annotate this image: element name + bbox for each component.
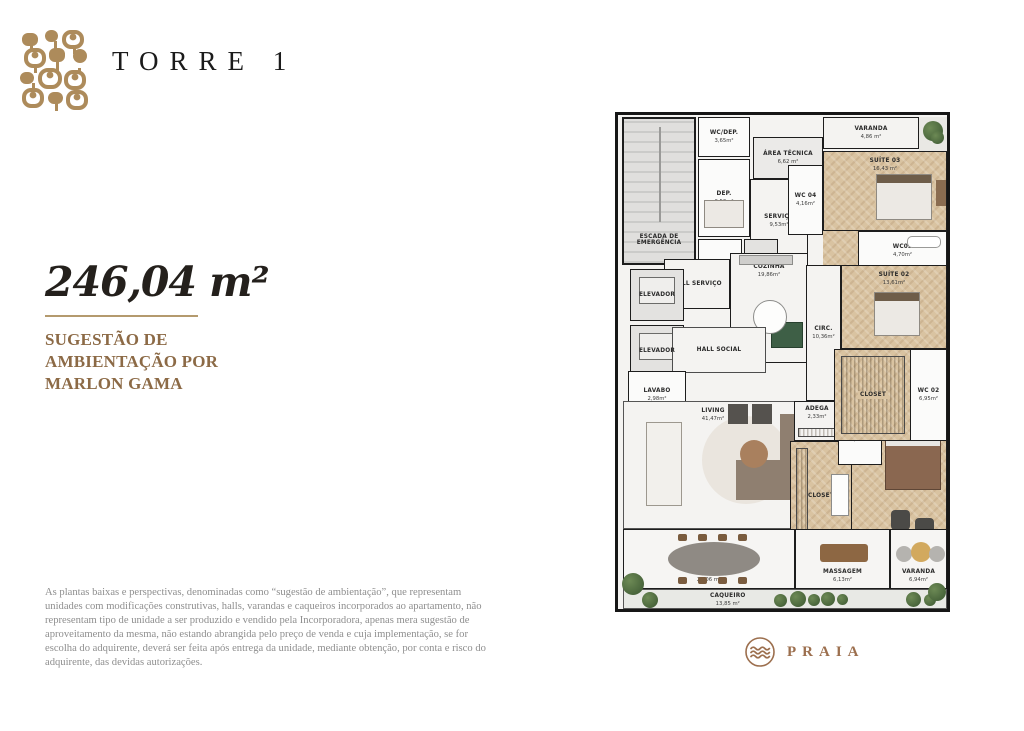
room-label: CIRC. [814, 326, 832, 333]
elevator-cab [639, 277, 675, 304]
room-area: 9,53m² [769, 222, 788, 228]
plant-icon [774, 594, 787, 607]
room-area: 4,86 m² [861, 134, 882, 140]
room-area: 6,13m² [833, 577, 852, 583]
plant-icon [808, 594, 820, 606]
credit-line-3: MARLON GAMA [45, 373, 275, 395]
kitchen-counter [739, 255, 793, 265]
room-hall-social: HALL SOCIAL [672, 327, 766, 373]
room-area: 16,43 m² [873, 166, 897, 172]
dining-chair [738, 577, 747, 584]
dining-chair [698, 577, 707, 584]
caqueiro-label: CAQUEIRO 13,85 m² [710, 593, 745, 607]
plant-icon [642, 592, 658, 608]
elevator-cab [639, 333, 675, 360]
plant-icon [790, 591, 806, 607]
dining-chair [718, 534, 727, 541]
unit-info: 246,04 m² SUGESTÃO DE AMBIENTAÇÃO POR MA… [45, 258, 275, 394]
dining-table [668, 542, 760, 576]
disclaimer-text: As plantas baixas e perspectivas, denomi… [45, 586, 489, 670]
praia-brand: PRAIA [744, 636, 865, 668]
room-closet-sup: CLOSET [834, 349, 912, 441]
room-label: LAVABO [644, 388, 671, 395]
planter-topright [919, 117, 947, 151]
room-label: ELEVADOR [639, 348, 675, 355]
room-wc04: WC 04 4,16m² [788, 165, 823, 235]
closet-desk [831, 474, 849, 516]
room-varanda-top: VARANDA 4,86 m² [823, 117, 919, 149]
room-area: 41,47m² [702, 416, 724, 422]
room-label: ESCADA DE EMERGÊNCIA [624, 234, 694, 247]
room-area: 6,94m² [909, 577, 928, 583]
room-area: 13,85 m² [716, 601, 740, 607]
floor-plan: ESCADA DE EMERGÊNCIA WC/DEP. 3,65m² DEP.… [615, 112, 950, 612]
bathtub [907, 236, 941, 248]
room-label: DEP. [717, 191, 732, 198]
room-area: 6,62 m² [778, 159, 799, 165]
living-sofa [646, 422, 682, 506]
unit-area: 246,04 m² [45, 258, 275, 306]
room-label: WC/DEP. [710, 130, 738, 137]
coffee-table [740, 440, 768, 468]
room-area: 4,70m² [893, 252, 912, 258]
dining-chair [718, 577, 727, 584]
headboard [875, 293, 919, 301]
room-suite02: SUÍTE 02 13,61m² [841, 265, 947, 349]
room-escada: ESCADA DE EMERGÊNCIA [622, 117, 696, 265]
plant-icon [928, 583, 946, 601]
massage-table [820, 544, 868, 562]
terrace-chair [929, 546, 945, 562]
room-area: 4,16m² [796, 201, 815, 207]
room-varanda2: VARANDA 6,94m² [890, 529, 947, 589]
room-label: SUÍTE 03 [870, 158, 901, 165]
lounge-chair [891, 510, 910, 530]
mosaic-tiles-icon [18, 28, 96, 116]
room-label: LIVING [701, 408, 724, 415]
room-caqueiro: CAQUEIRO 13,85 m² [623, 589, 947, 609]
wine-rack [798, 428, 836, 437]
ambience-credit: SUGESTÃO DE AMBIENTAÇÃO POR MARLON GAMA [45, 329, 275, 394]
tower-title: TORRE 1 [112, 46, 297, 77]
room-area: 2,33m² [807, 414, 826, 420]
dep-bed [704, 200, 744, 228]
room-area: 6,95m² [919, 396, 938, 402]
room-label: CAQUEIRO [710, 593, 745, 600]
room-label: VARANDA [902, 569, 935, 576]
dining-chair [678, 534, 687, 541]
dining-chair [738, 534, 747, 541]
room-area: 13,61m² [883, 280, 905, 286]
room-label: VARANDA [854, 126, 887, 133]
brand-name: PRAIA [787, 644, 865, 661]
master-bed [885, 436, 941, 490]
headboard [877, 175, 931, 183]
room-label: WC 04 [795, 193, 817, 200]
suite03-bed [876, 174, 932, 220]
room-wc02: WC 02 6,95m² [910, 349, 947, 441]
credit-line-1: SUGESTÃO DE [45, 329, 275, 351]
plant-icon [931, 131, 944, 144]
room-label: WC 02 [918, 388, 940, 395]
terrace-chair [896, 546, 912, 562]
room-wc-dep: WC/DEP. 3,65m² [698, 117, 750, 157]
room-area: 19,86m² [758, 272, 780, 278]
suite02-bed [874, 292, 920, 336]
room-elevador-1: ELEVADOR [630, 269, 684, 321]
room-area: 3,65m² [714, 138, 733, 144]
room-area: 10,36m² [812, 334, 834, 340]
terrace-table [911, 542, 931, 562]
room-label: HALL SOCIAL [697, 347, 742, 354]
credit-line-2: AMBIENTAÇÃO POR [45, 351, 275, 373]
room-massagem: MASSAGEM 6,13m² [795, 529, 890, 589]
suite03-desk [936, 180, 946, 206]
dining-chair [678, 577, 687, 584]
room-label: MASSAGEM [823, 569, 862, 576]
room-suite03: SUÍTE 03 16,43 m² [823, 151, 947, 231]
room-dep: DEP. 6,53m² [698, 159, 750, 237]
plant-icon [622, 573, 644, 595]
waves-icon [744, 636, 776, 668]
armchair [728, 404, 748, 424]
room-living: LIVING 41,47m² [623, 401, 803, 529]
room-label: ELEVADOR [639, 292, 675, 299]
dining-chair [698, 534, 707, 541]
armchair [752, 404, 772, 424]
room-label: ÁREA TÉCNICA [763, 151, 813, 158]
plant-icon [821, 592, 835, 606]
plant-icon [906, 592, 921, 607]
stair-divider [659, 127, 661, 222]
room-label: SUÍTE 02 [879, 272, 910, 279]
room-varanda-main: VARANDA 24,06 m² [623, 529, 795, 589]
gold-divider [45, 315, 198, 317]
plant-icon [837, 594, 848, 605]
room-label: CLOSET [858, 391, 888, 400]
room-label: ADEGA [805, 406, 829, 413]
